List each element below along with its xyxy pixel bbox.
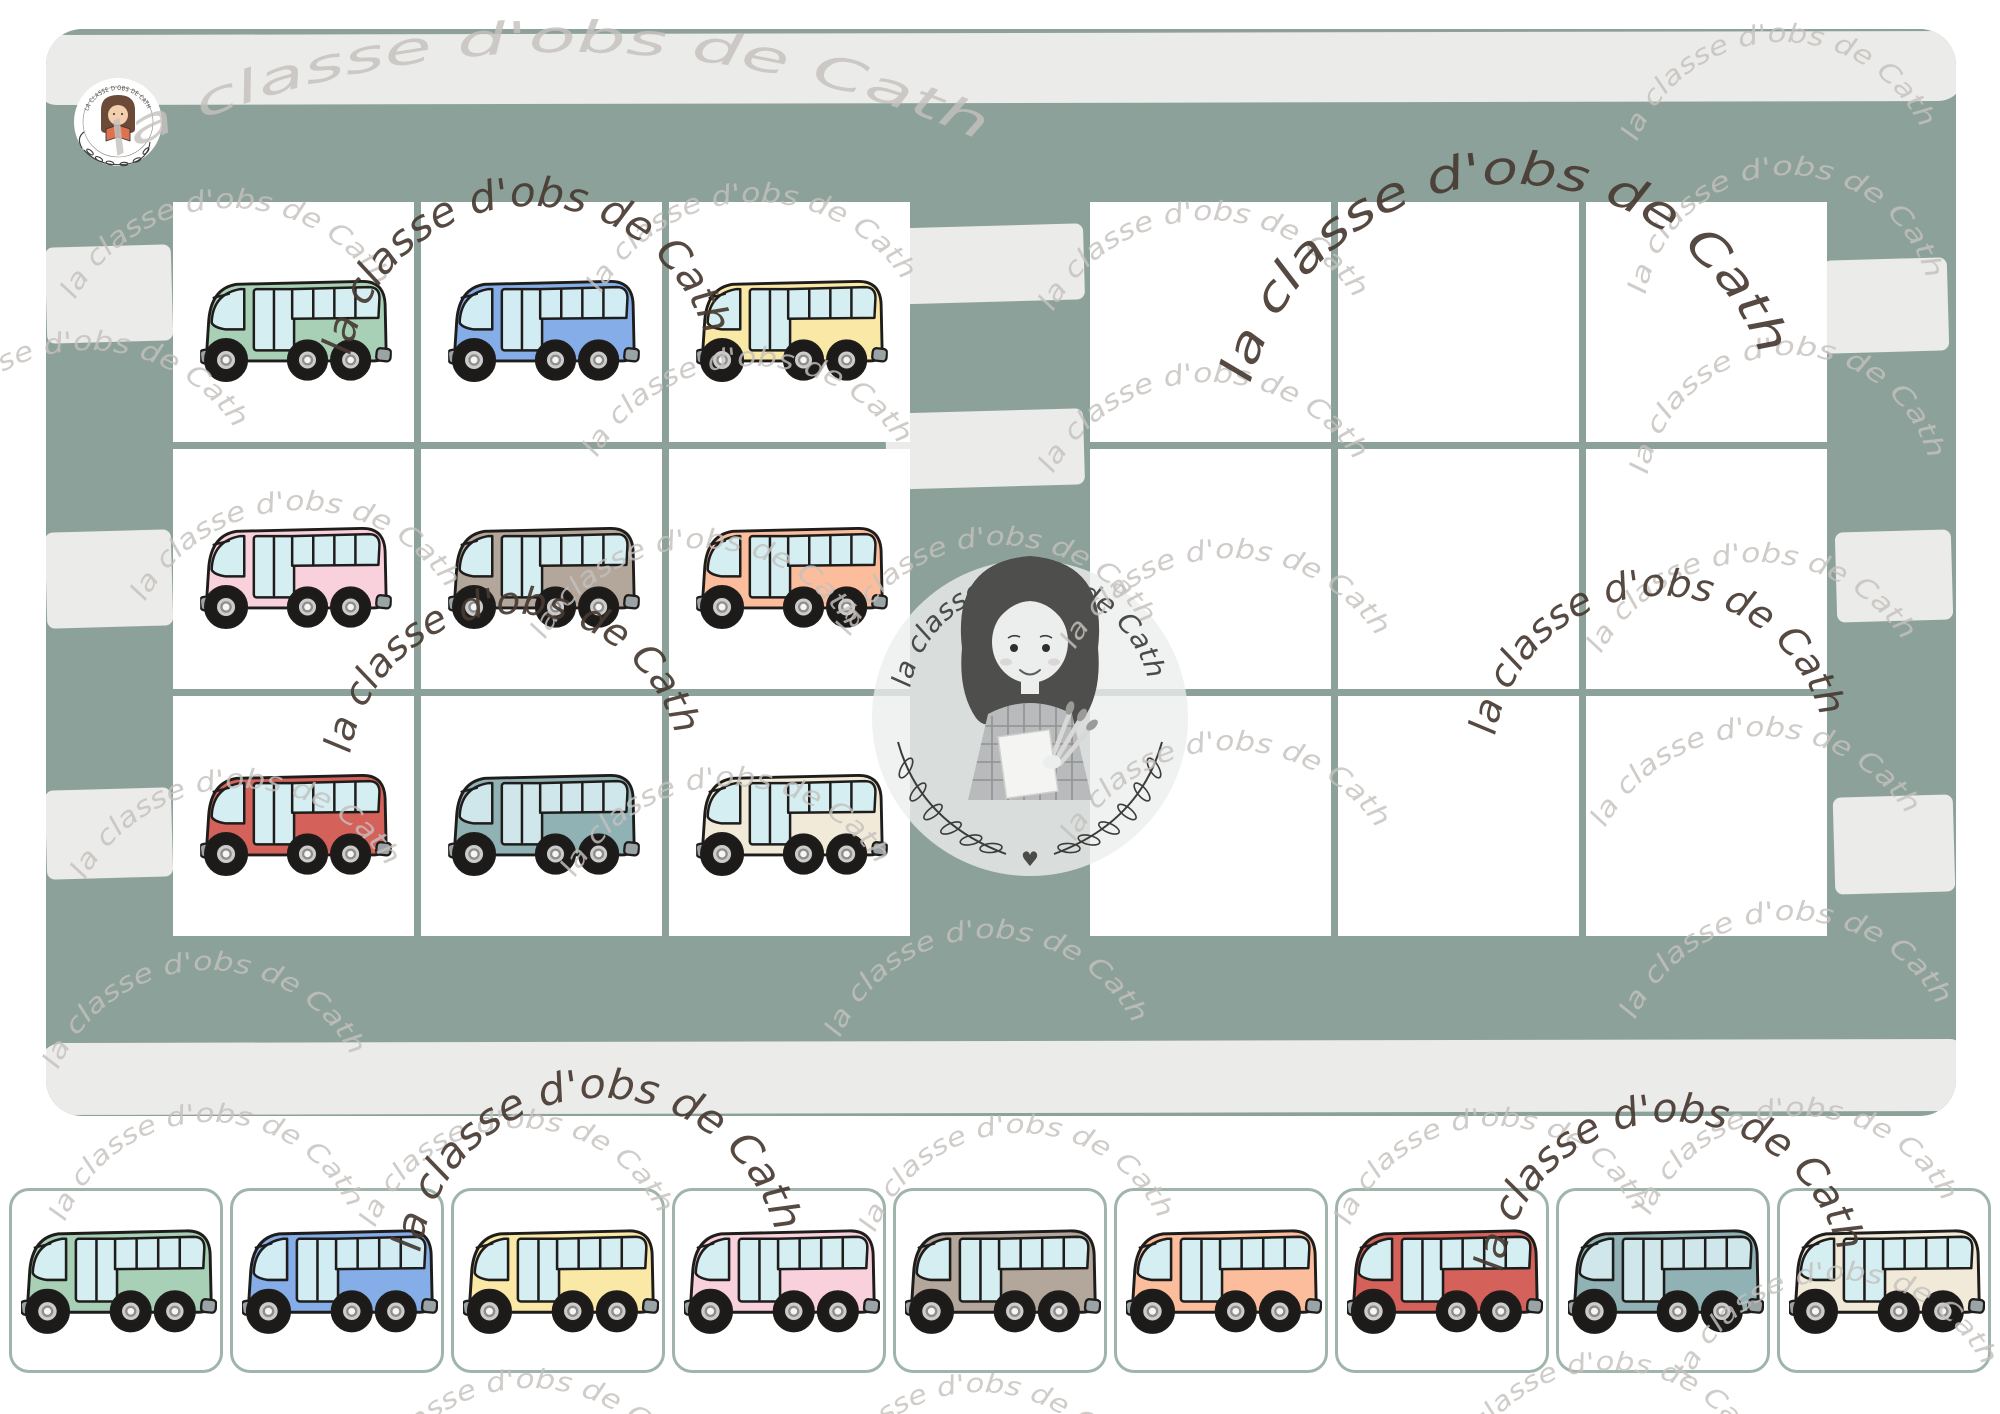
bus-blue-icon [242, 1217, 438, 1335]
model-grid-cell-pink [173, 449, 414, 689]
model-grid-cell-orange [669, 449, 910, 689]
model-grid-cell-cream [669, 696, 910, 936]
bus-teal-icon [1568, 1217, 1764, 1335]
board-stripe [46, 1039, 1956, 1115]
board-stripe [1835, 529, 1953, 622]
watermark-text: la classe d'obs de Cath [814, 1369, 1138, 1414]
model-grid-cell-taupe [421, 449, 662, 689]
cutout-card-red [1335, 1188, 1549, 1373]
answer-grid-cell-1 [1090, 202, 1331, 442]
bus-yellow-icon [463, 1217, 659, 1335]
cutout-card-taupe [893, 1188, 1107, 1373]
answer-grid-cell-9 [1586, 696, 1827, 936]
model-grid-cell-teal [421, 696, 662, 936]
board-stripe [1823, 257, 1950, 353]
worksheet-page: LA CLASSE D'OBS DE CATH la classe d'obs … [0, 0, 2000, 1414]
bus-taupe-icon [905, 1217, 1101, 1335]
model-grid-cell-yellow [669, 202, 910, 442]
board-stripe [46, 787, 173, 879]
bus-green-icon [200, 268, 392, 383]
board-stripe [46, 31, 1956, 105]
cutout-card-green [9, 1188, 223, 1373]
answer-grid-cell-2 [1338, 202, 1579, 442]
corner-logo-girl-illustration [101, 95, 135, 141]
bus-orange-icon [696, 515, 888, 630]
bus-cream-icon [696, 762, 888, 877]
model-grid [173, 202, 910, 936]
board-stripe [885, 223, 1085, 304]
bus-green-icon [21, 1217, 217, 1335]
cutout-card-teal [1556, 1188, 1770, 1373]
answer-grid-cell-8 [1338, 696, 1579, 936]
cutout-card-pink [672, 1188, 886, 1373]
cutout-card-yellow [451, 1188, 665, 1373]
cutout-card-cream [1777, 1188, 1991, 1373]
answer-grid-cell-4 [1090, 449, 1331, 689]
answer-grid-cell-5 [1338, 449, 1579, 689]
model-grid-cell-red [173, 696, 414, 936]
bus-pink-icon [684, 1217, 880, 1335]
bus-blue-icon [448, 268, 640, 383]
cutout-card-row [9, 1188, 1991, 1373]
bus-pink-icon [200, 515, 392, 630]
empty-answer-grid [1090, 202, 1827, 936]
bus-yellow-icon [696, 268, 888, 383]
bus-red-icon [1347, 1217, 1543, 1335]
answer-grid-cell-3 [1586, 202, 1827, 442]
bus-teal-icon [448, 762, 640, 877]
board-stripe [1833, 794, 1956, 894]
cutout-card-orange [1114, 1188, 1328, 1373]
model-grid-cell-green [173, 202, 414, 442]
board-stripe [46, 244, 173, 343]
bus-cream-icon [1789, 1217, 1985, 1335]
bus-orange-icon [1126, 1217, 1322, 1335]
answer-grid-cell-7 [1090, 696, 1331, 936]
board-stripe [46, 529, 173, 628]
bus-red-icon [200, 762, 392, 877]
cutout-card-blue [230, 1188, 444, 1373]
corner-brand-logo: LA CLASSE D'OBS DE CATH [70, 74, 166, 170]
bus-taupe-icon [448, 515, 640, 630]
board-stripe [885, 408, 1085, 489]
model-grid-cell-blue [421, 202, 662, 442]
answer-grid-cell-6 [1586, 449, 1827, 689]
